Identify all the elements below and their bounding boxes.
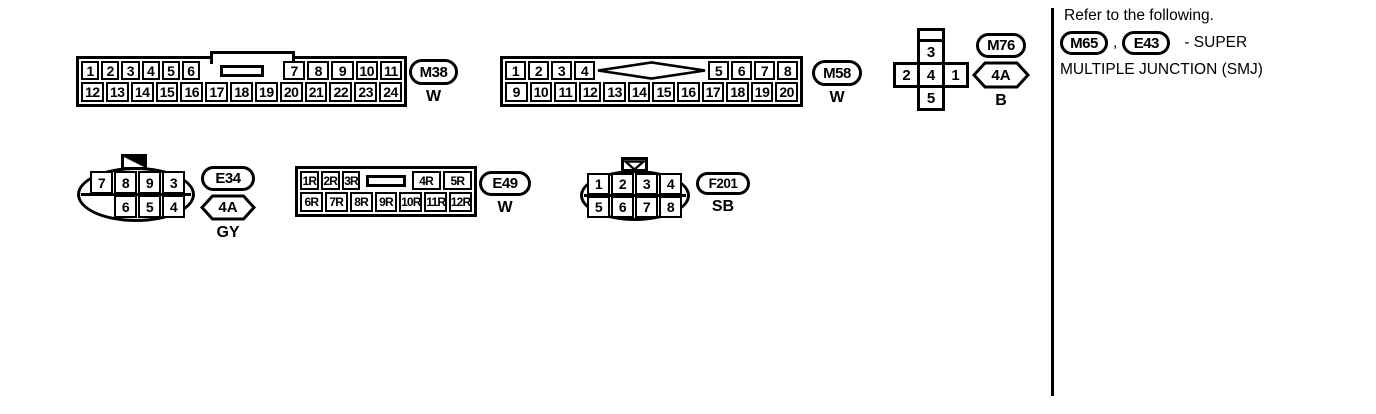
connector-m38: 123456 7891011 1213141516171819202122232… — [76, 56, 407, 107]
pin-cell: 2 — [893, 62, 920, 88]
note-suffix: - SUPER — [1184, 34, 1247, 52]
pin-cell: 8 — [307, 61, 329, 80]
connector-e49-top-row: 1R2R3R 4R5R — [300, 171, 472, 190]
pin-cell: 5 — [917, 85, 945, 111]
connector-color-code: W — [497, 199, 512, 217]
note-separator: , — [1113, 34, 1117, 52]
connector-color-code: SB — [712, 198, 734, 216]
connector-m38-bottom-row: 12131415161718192021222324 — [81, 82, 402, 102]
pin-cell: 9R — [375, 192, 398, 212]
connector-color-code: W — [426, 88, 441, 106]
pin-group: 5678 — [708, 61, 798, 80]
pin-cell: 1R — [300, 171, 319, 190]
connector-id-badge: M76 — [976, 33, 1026, 58]
pin-cell: 21 — [305, 82, 328, 102]
pin-cell: 1 — [587, 173, 610, 195]
pin-cell: 4 — [574, 61, 595, 80]
pin-cell: 14 — [628, 82, 651, 102]
pin-cell: 12R — [449, 192, 472, 212]
pin-cell: 3 — [551, 61, 572, 80]
pin-cell: 6 — [611, 196, 634, 218]
connector-code: 4A — [991, 67, 1010, 84]
note-ref-line: M65 , E43 - SUPER — [1060, 31, 1370, 55]
keying-slot-icon — [220, 65, 264, 77]
connector-color-code: W — [829, 89, 844, 107]
pin-cell: 11R — [424, 192, 447, 212]
connector-e34-label: E34 4A GY — [200, 166, 256, 242]
pin-cell: 14 — [131, 82, 154, 102]
pin-group: 91011121314151617181920 — [505, 82, 798, 102]
pin-cell: 1 — [942, 62, 969, 88]
connector-f201-label: F201 SB — [696, 172, 750, 216]
pin-cell: 18 — [726, 82, 749, 102]
keying-diamond-area — [597, 61, 706, 80]
pin-cell: 10R — [399, 192, 422, 212]
pin-cell: 19 — [751, 82, 774, 102]
pin-group: 5678 — [587, 196, 682, 218]
pin-cell: 6R — [300, 192, 323, 212]
pin-cell: 13 — [603, 82, 626, 102]
connector-e49-label: E49 W — [479, 171, 531, 217]
pin-cell: 13 — [106, 82, 129, 102]
pin-cell: 7 — [754, 61, 775, 80]
connector-m58-bottom-row: 91011121314151617181920 — [505, 82, 798, 102]
connector-color-code: GY — [216, 224, 239, 242]
pin-group: 1234 — [587, 173, 682, 195]
pin-cell: 4 — [162, 195, 185, 218]
note-line3: MULTIPLE JUNCTION (SMJ) — [1060, 60, 1370, 80]
pin-cell: 2 — [611, 173, 634, 195]
pin-cell: 9 — [505, 82, 528, 102]
pin-cell: 6 — [182, 61, 200, 80]
pin-cell: 4 — [659, 173, 682, 195]
pin-cell: 17 — [702, 82, 725, 102]
pin-cell: 5R — [443, 171, 472, 190]
pin-cell: 11 — [554, 82, 577, 102]
pin-cell: 16 — [677, 82, 700, 102]
connector-id-badge: E49 — [479, 171, 531, 196]
connector-id-badge: E34 — [201, 166, 255, 191]
pin-cell: 8 — [659, 196, 682, 218]
pin-cell: 15 — [652, 82, 675, 102]
pin-cell: 18 — [230, 82, 253, 102]
note-line1: Refer to the following. — [1064, 6, 1370, 26]
connector-m38-label: M38 W — [409, 59, 458, 106]
pin-cell: 23 — [354, 82, 377, 102]
pin-cell: 6 — [114, 195, 137, 218]
pin-group: 654 — [114, 195, 185, 218]
pin-cell: 4 — [142, 61, 160, 80]
pin-cell: 5 — [708, 61, 729, 80]
pin-cell: 7 — [283, 61, 305, 80]
keying-diamond-icon — [597, 61, 706, 80]
pin-cell: 8R — [350, 192, 373, 212]
keying-slot-area — [363, 171, 410, 190]
pin-group: 1R2R3R — [300, 171, 361, 190]
connector-m58-label: M58 W — [812, 60, 862, 107]
connector-code-hexagon: 4A — [972, 61, 1030, 89]
pin-cell: 3 — [635, 173, 658, 195]
connector-code: 4A — [218, 199, 237, 216]
pin-group: 1234 — [505, 61, 595, 80]
connector-f201: 1234 5678 — [580, 170, 690, 221]
connector-m76-label: M76 4A B — [972, 33, 1030, 110]
pin-group: 123456 — [81, 61, 200, 80]
connector-ref-badge: E43 — [1122, 31, 1170, 55]
pin-group: 7891011 — [283, 61, 402, 80]
pin-cell: 7R — [325, 192, 348, 212]
pin-cell: 3R — [342, 171, 361, 190]
pin-cell: 8 — [777, 61, 798, 80]
reference-note: Refer to the following. M65 , E43 - SUPE… — [1060, 6, 1370, 80]
pin-cell: 3 — [162, 171, 185, 194]
connector-ref-badge: M65 — [1060, 31, 1108, 55]
pin-cell: 3 — [121, 61, 139, 80]
pin-cell: 20 — [280, 82, 303, 102]
pin-cell: 7 — [635, 196, 658, 218]
pin-cell: 12 — [81, 82, 104, 102]
connector-code-hexagon: 4A — [200, 194, 256, 221]
pin-cell: 10 — [530, 82, 553, 102]
pin-cell: 11 — [380, 61, 402, 80]
connector-m38-top-row: 123456 7891011 — [81, 61, 402, 80]
keying-slot-icon — [366, 175, 406, 187]
pin-group: 4R5R — [412, 171, 473, 190]
connector-id-badge: M38 — [409, 59, 458, 85]
connector-m58: 1234 5678 91011121314151617181920 — [500, 56, 803, 107]
pin-cell: 8 — [114, 171, 137, 194]
connector-e49: 1R2R3R 4R5R 6R7R8R9R10R11R12R — [295, 166, 477, 217]
connector-color-code: B — [995, 92, 1007, 110]
pin-cell: 9 — [331, 61, 353, 80]
pin-cell: 15 — [156, 82, 179, 102]
vertical-divider — [1051, 8, 1054, 396]
connector-e49-bottom-row: 6R7R8R9R10R11R12R — [300, 192, 472, 212]
pin-cell: 5 — [587, 196, 610, 218]
pin-cell: 2 — [528, 61, 549, 80]
pin-cell: 22 — [329, 82, 352, 102]
pin-group: 7893 — [90, 171, 185, 194]
pin-group: 6R7R8R9R10R11R12R — [300, 192, 472, 212]
pin-cell: 2 — [101, 61, 119, 80]
connector-m76: 3 2 4 1 5 — [893, 28, 969, 111]
pin-cell: 9 — [138, 171, 161, 194]
pin-cell: 1 — [505, 61, 526, 80]
pin-cell: 5 — [162, 61, 180, 80]
pin-cell: 5 — [138, 195, 161, 218]
pin-cell: 7 — [90, 171, 113, 194]
pin-cell: 12 — [579, 82, 602, 102]
pin-cell: 4R — [412, 171, 441, 190]
connector-id-badge: F201 — [696, 172, 750, 195]
connector-e34: 7893 654 — [77, 167, 195, 222]
pin-cell: 16 — [180, 82, 203, 102]
pin-cell: 10 — [356, 61, 378, 80]
keying-slot-area — [202, 61, 281, 80]
pin-cell: 24 — [379, 82, 402, 102]
connector-id-badge: M58 — [812, 60, 862, 86]
connector-m58-top-row: 1234 5678 — [505, 61, 798, 80]
pin-cell: 19 — [255, 82, 278, 102]
pin-cell: 6 — [731, 61, 752, 80]
pin-cell: 17 — [205, 82, 228, 102]
pin-cell: 2R — [321, 171, 340, 190]
pin-cell: 20 — [775, 82, 798, 102]
pin-cell: 1 — [81, 61, 99, 80]
pin-group: 12131415161718192021222324 — [81, 82, 402, 102]
